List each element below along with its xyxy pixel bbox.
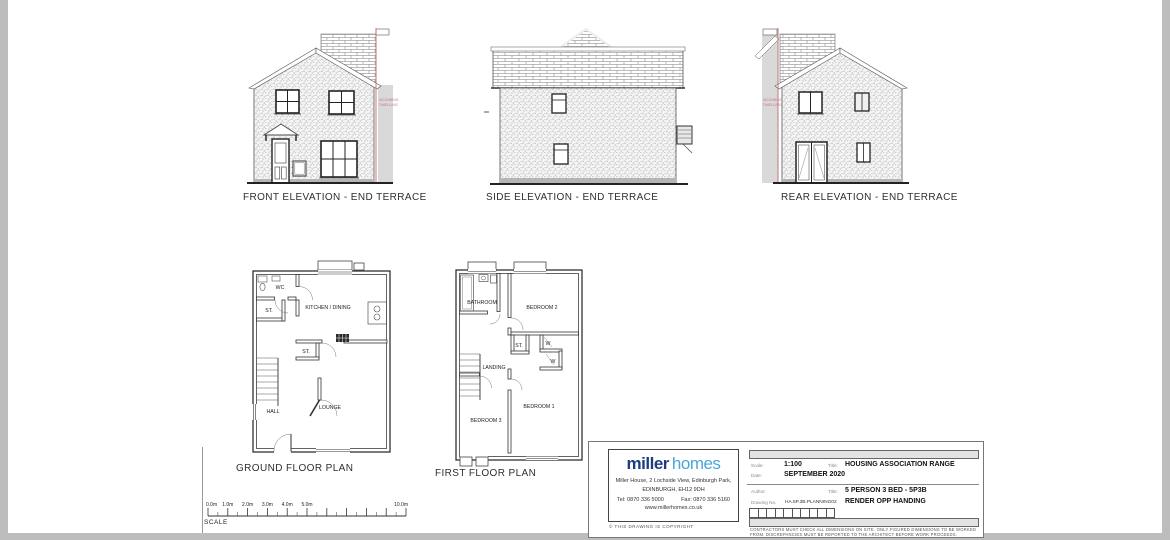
page-edge-right bbox=[1162, 0, 1170, 540]
rear-french-doors bbox=[796, 142, 827, 183]
logo-word-homes: homes bbox=[672, 454, 721, 473]
svg-text:BATHROOM: BATHROOM bbox=[467, 300, 497, 306]
rear-elevation-drawing: ADJOINING DWELLING bbox=[753, 22, 915, 188]
front-elevation-drawing: ADJOINING DWELLING bbox=[243, 22, 399, 188]
revision-boxes bbox=[750, 508, 835, 518]
front-upper-left-window bbox=[274, 90, 301, 114]
svg-text:5.0m: 5.0m bbox=[301, 502, 312, 508]
scale-bar-caption: SCALE bbox=[204, 519, 228, 526]
side-elevation-label: SIDE ELEVATION - END TERRACE bbox=[486, 192, 658, 203]
ground-hall-window bbox=[252, 404, 259, 420]
handing-note: RENDER OPP HANDING bbox=[845, 498, 926, 505]
svg-text:ADJOINING: ADJOINING bbox=[379, 98, 399, 102]
title2-field-value: 5 PERSON 3 BED - 5P3B bbox=[845, 487, 927, 494]
scale-bar-ticks bbox=[208, 508, 406, 516]
front-lower-window bbox=[319, 141, 359, 178]
first-floor-plan-label: FIRST FLOOR PLAN bbox=[435, 468, 536, 479]
side-roof-plane bbox=[493, 50, 683, 88]
side-ridge-band bbox=[491, 47, 685, 51]
svg-text:2.0m: 2.0m bbox=[242, 502, 253, 508]
copyright-note: © THIS DRAWING IS COPYRIGHT bbox=[609, 524, 694, 529]
sheet-frame-line bbox=[202, 447, 203, 533]
revision-box bbox=[826, 508, 836, 518]
scale-bar-labels: 0.0m 1.0m 2.0m 3.0m 4.0m 5.0m 10.0m bbox=[206, 502, 408, 508]
side-lower-window bbox=[554, 144, 568, 164]
side-gable-peak bbox=[558, 29, 614, 49]
company-fax: Fax: 0870 336 5160 bbox=[681, 497, 730, 503]
svg-text:ST.: ST. bbox=[265, 308, 273, 314]
miller-homes-logo: millerhomes bbox=[609, 455, 738, 472]
address-line-2: EDINBURGH, EH12 9DH bbox=[609, 486, 738, 495]
svg-text:KITCHEN / DINING: KITCHEN / DINING bbox=[305, 305, 350, 311]
ground-floor-plan-label: GROUND FLOOR PLAN bbox=[236, 463, 353, 474]
ground-kitchen-window-head bbox=[318, 261, 352, 270]
svg-text:ST.: ST. bbox=[302, 349, 310, 355]
front-entrance-door bbox=[272, 139, 289, 183]
ground-vent-head bbox=[354, 263, 364, 270]
svg-text:BEDROOM 2: BEDROOM 2 bbox=[526, 305, 557, 311]
ground-floor-plan-drawing: WC ST. KITCHEN / DINING ST. HALL LOUNGE bbox=[248, 258, 396, 463]
first-outer-walls bbox=[456, 270, 582, 460]
scale-bar: 0.0m 1.0m 2.0m 3.0m 4.0m 5.0m 10.0m bbox=[204, 498, 414, 524]
svg-text:4.0m: 4.0m bbox=[282, 502, 293, 508]
title1-field-value: HOUSING ASSOCIATION RANGE bbox=[845, 461, 955, 468]
author-field-label: Author: bbox=[751, 489, 766, 494]
side-elevation-drawing bbox=[456, 22, 696, 188]
company-panel: millerhomes Miller House, 2 Lochside Vie… bbox=[608, 449, 739, 522]
drawing-no-field-label: Drawing No. bbox=[751, 500, 776, 505]
svg-text:DWELLING: DWELLING bbox=[379, 103, 398, 107]
logo-word-miller: miller bbox=[627, 454, 669, 473]
svg-text:W: W bbox=[551, 359, 556, 365]
rear-upper-left-window bbox=[797, 92, 824, 114]
svg-text:0.0m: 0.0m bbox=[206, 502, 217, 508]
side-flue-vent bbox=[677, 126, 692, 153]
ground-lounge-window bbox=[316, 448, 350, 454]
title2-field-label: Title: bbox=[828, 489, 838, 494]
svg-text:ADJOINING: ADJOINING bbox=[763, 98, 783, 102]
rear-elevation-label: REAR ELEVATION - END TERRACE bbox=[781, 192, 958, 203]
front-upper-right-window bbox=[327, 91, 356, 115]
svg-text:ST.: ST. bbox=[515, 343, 523, 349]
front-elevation-label: FRONT ELEVATION - END TERRACE bbox=[243, 192, 427, 203]
title-block-divider bbox=[747, 484, 979, 485]
svg-text:3.0m: 3.0m bbox=[262, 502, 273, 508]
company-tel: Tel: 0870 336 5000 bbox=[617, 497, 664, 503]
svg-text:DWELLING: DWELLING bbox=[763, 103, 782, 107]
scale-field-label: Scale: bbox=[751, 463, 764, 468]
svg-text:WC: WC bbox=[276, 285, 285, 291]
rear-gable-coping bbox=[763, 29, 777, 35]
side-upper-window bbox=[552, 94, 566, 113]
svg-text:BEDROOM 1: BEDROOM 1 bbox=[523, 404, 554, 410]
front-adjoining-dwelling-note: ADJOINING DWELLING bbox=[379, 98, 399, 107]
company-website: www.millerhomes.co.uk bbox=[609, 505, 738, 511]
front-gable-coping bbox=[376, 29, 389, 35]
svg-text:LOUNGE: LOUNGE bbox=[319, 405, 341, 411]
front-meter-box bbox=[293, 161, 306, 176]
rear-adjoining-dwelling-note: ADJOINING DWELLING bbox=[763, 98, 783, 107]
svg-text:HALL: HALL bbox=[267, 409, 280, 415]
side-render-wall bbox=[500, 88, 676, 184]
page-edge-left bbox=[0, 0, 8, 540]
drawing-sheet: ADJOINING DWELLING FRONT ELEVATION - END… bbox=[0, 0, 1170, 540]
svg-text:10.0m: 10.0m bbox=[394, 502, 408, 508]
rear-adjoining-dwelling-body bbox=[762, 35, 778, 183]
first-floor-plan-drawing: BATHROOM BEDROOM 2 ST. W W LANDING BEDRO… bbox=[452, 258, 587, 468]
ground-kitchen-window bbox=[318, 270, 352, 276]
svg-text:1.0m: 1.0m bbox=[222, 502, 233, 508]
title-block-top-bar bbox=[749, 450, 979, 459]
date-field-label: Date: bbox=[751, 473, 762, 478]
drawing-no-field-value: HA.5P.3B.PLANNING02 bbox=[785, 500, 837, 505]
svg-text:BEDROOM 3: BEDROOM 3 bbox=[470, 418, 501, 424]
address-line-1: Miller House, 2 Lochside View, Edinburgh… bbox=[609, 477, 738, 486]
date-field-value: SEPTEMBER 2020 bbox=[784, 471, 845, 478]
title-block: millerhomes Miller House, 2 Lochside Vie… bbox=[588, 441, 984, 538]
company-address: Miller House, 2 Lochside View, Edinburgh… bbox=[609, 477, 738, 495]
side-plinth bbox=[500, 178, 676, 183]
rear-upper-right-window bbox=[855, 93, 869, 111]
page-edge-bottom bbox=[0, 533, 1170, 540]
scale-field-value: 1:100 bbox=[784, 461, 802, 468]
company-phone-row: Tel: 0870 336 5000 Fax: 0870 336 5160 bbox=[609, 497, 738, 503]
title1-field-label: Title: bbox=[828, 463, 838, 468]
svg-text:LANDING: LANDING bbox=[482, 365, 505, 371]
rear-lower-right-window bbox=[857, 143, 870, 162]
disclaimer-line-2: FROM. DISCREPANCIES MUST BE REPORTED TO … bbox=[750, 532, 957, 537]
svg-text:W: W bbox=[546, 341, 551, 347]
